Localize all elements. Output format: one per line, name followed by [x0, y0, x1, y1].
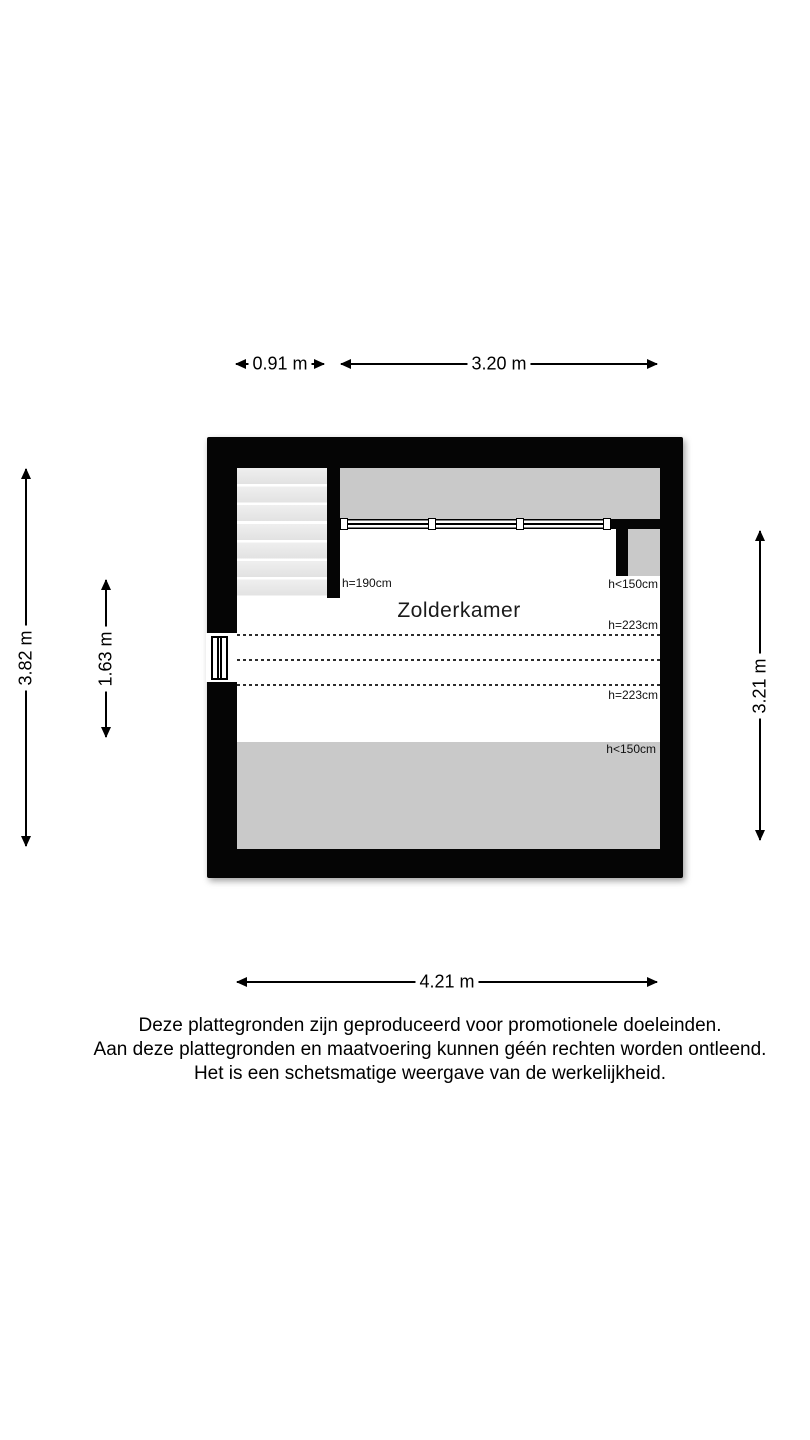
- arrow-down-icon: [101, 727, 111, 738]
- arrow-down-icon: [21, 836, 31, 847]
- ceiling-height-line: [237, 684, 660, 686]
- height-label-stair-wall: h=190cm: [342, 576, 392, 590]
- height-label-ceiling-upper: h=223cm: [600, 618, 658, 632]
- low-ceiling-zone-bottom: [237, 742, 660, 849]
- arrow-up-icon: [101, 579, 111, 590]
- arrow-left-icon: [340, 359, 351, 369]
- disclaimer-line-2: Aan deze plattegronden en maatvoering ku…: [50, 1038, 810, 1062]
- window-mullion-icon: [516, 518, 524, 530]
- dimension-right-depth: 3.21 m: [750, 530, 770, 841]
- arrow-left-icon: [236, 977, 247, 987]
- window-frame-icon: [340, 518, 348, 530]
- dormer-side-wall: [616, 529, 628, 576]
- dimension-label: 0.91 m: [248, 354, 311, 375]
- dimension-inner-depth: 1.63 m: [96, 579, 116, 738]
- dimension-total-width: 4.21 m: [236, 972, 658, 992]
- stair-wall: [327, 468, 340, 598]
- window-mullion-icon: [428, 518, 436, 530]
- floorplan-page: 0.91 m 3.20 m 3.82 m 1.63 m 3.21 m 4.21 …: [0, 0, 810, 1440]
- arrow-up-icon: [21, 468, 31, 479]
- height-label-roof-bottom: h<150cm: [598, 742, 656, 756]
- arrow-left-icon: [235, 359, 246, 369]
- room-label: Zolderkamer: [369, 599, 549, 623]
- window-pane-icon: [217, 638, 222, 678]
- dimension-label: 1.63 m: [96, 626, 117, 691]
- arrow-right-icon: [647, 359, 658, 369]
- window-frame-icon: [603, 518, 611, 530]
- disclaimer: Deze plattegronden zijn geproduceerd voo…: [50, 1014, 810, 1086]
- dimension-stair-width: 0.91 m: [235, 354, 325, 374]
- dimension-upper-width: 3.20 m: [340, 354, 658, 374]
- height-label-dormer-side: h<150cm: [600, 577, 658, 591]
- arrow-right-icon: [314, 359, 325, 369]
- staircase: [237, 468, 327, 598]
- dimension-label: 3.82 m: [16, 625, 37, 690]
- low-ceiling-zone-top: [340, 468, 660, 519]
- dimension-label: 3.20 m: [467, 354, 530, 375]
- dimension-total-depth: 3.82 m: [16, 468, 36, 847]
- arrow-down-icon: [755, 830, 765, 841]
- disclaimer-line-3: Het is een schetsmatige weergave van de …: [50, 1062, 810, 1086]
- window-icon: [211, 636, 228, 680]
- disclaimer-line-1: Deze plattegronden zijn geproduceerd voo…: [50, 1014, 810, 1038]
- ceiling-height-line: [237, 634, 660, 636]
- arrow-right-icon: [647, 977, 658, 987]
- low-ceiling-corner: [628, 529, 660, 576]
- dormer-window: [340, 519, 611, 529]
- arrow-up-icon: [755, 530, 765, 541]
- wall-stub: [611, 519, 660, 529]
- dimension-label: 3.21 m: [750, 653, 771, 718]
- ceiling-height-line: [237, 659, 660, 661]
- dimension-label: 4.21 m: [415, 972, 478, 993]
- height-label-ceiling-lower: h=223cm: [600, 688, 658, 702]
